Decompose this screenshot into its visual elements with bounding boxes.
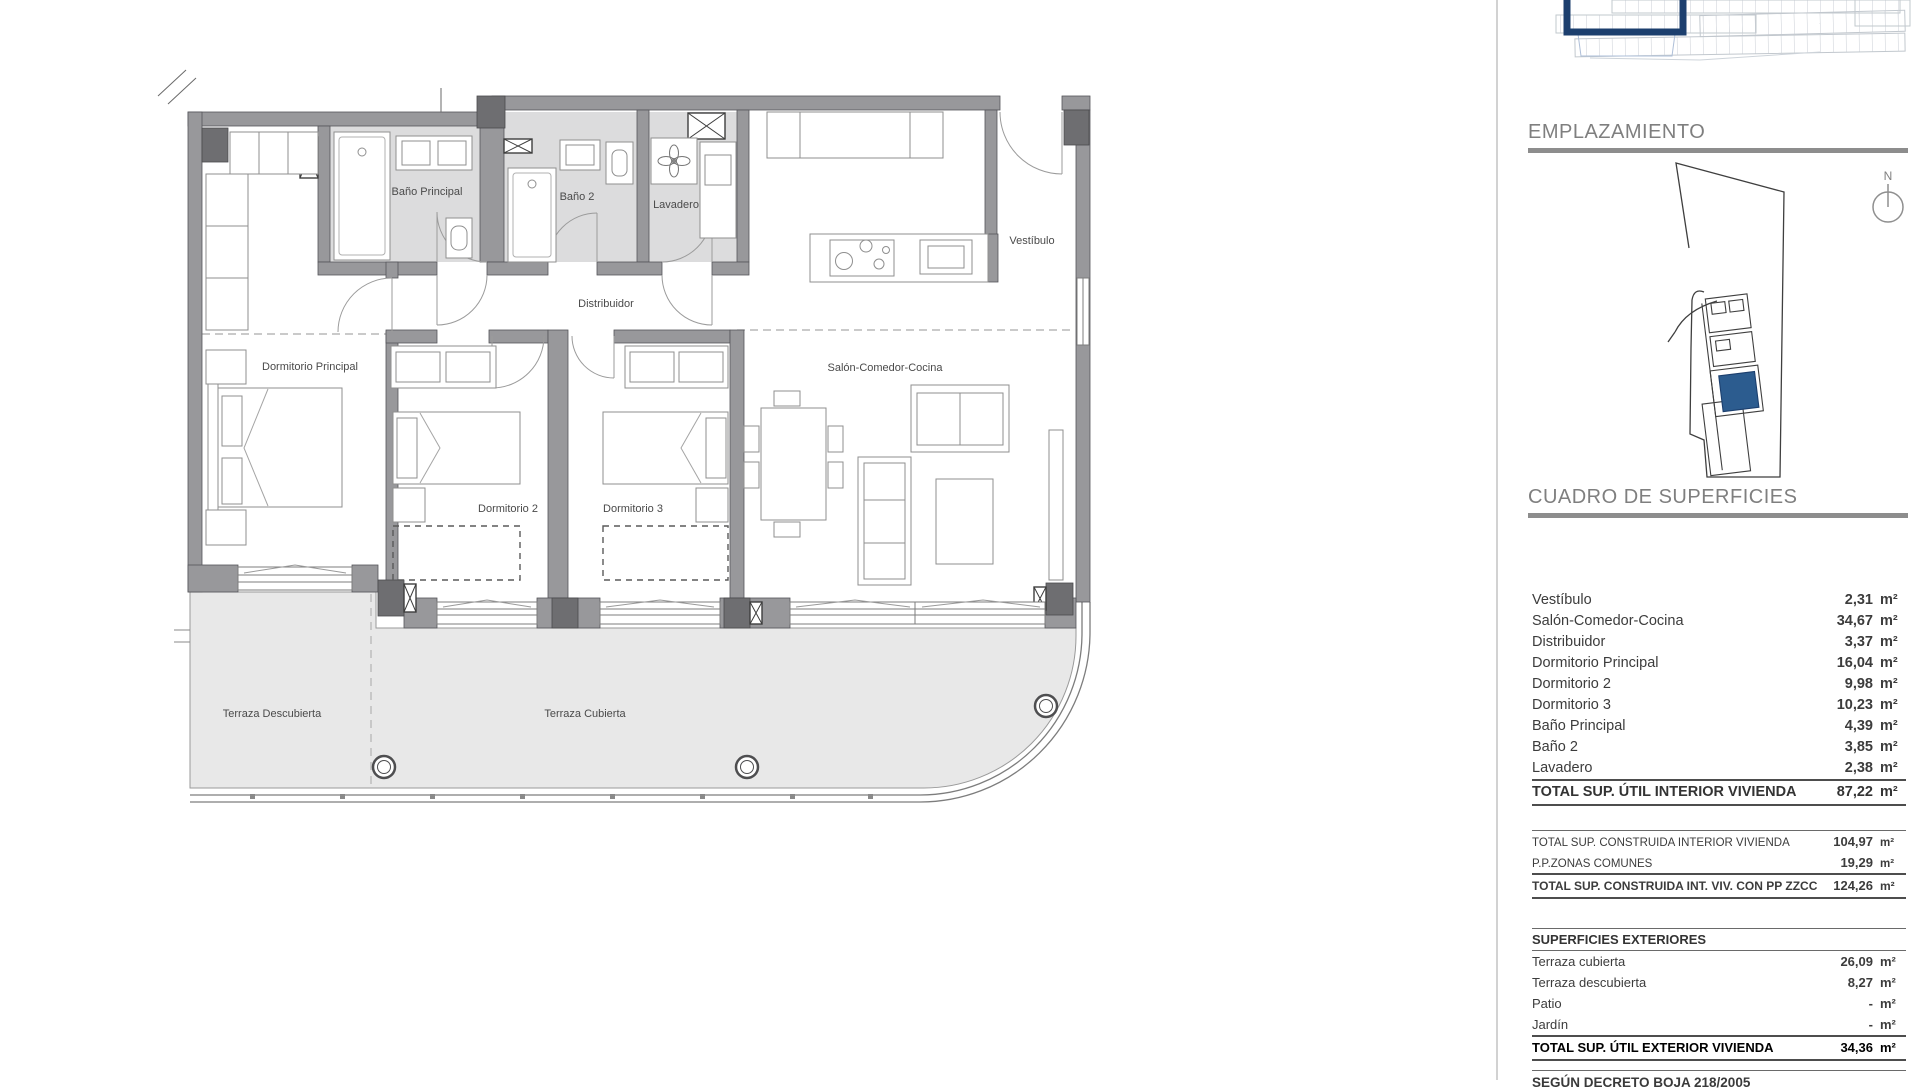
kitchen-units xyxy=(767,112,988,282)
label-terraza-descubierta: Terraza Descubierta xyxy=(223,708,322,720)
drawing-canvas: Baño Principal Baño 2 Lavadero Vestíbulo… xyxy=(0,0,1920,1080)
heading-underline xyxy=(1528,148,1908,153)
surface-row: Baño 23,85m² xyxy=(1532,737,1906,758)
living-furniture xyxy=(744,385,1063,585)
label-bano-principal: Baño Principal xyxy=(392,186,463,198)
construida-table: TOTAL SUP. CONSTRUIDA INTERIOR VIVIENDA1… xyxy=(1532,830,1906,899)
emplazamiento-heading: EMPLAZAMIENTO xyxy=(1528,121,1908,153)
cuadro-heading: CUADRO DE SUPERFICIES xyxy=(1528,486,1908,518)
surface-row: Terraza cubierta26,09m² xyxy=(1532,951,1906,972)
cuadro-title: CUADRO DE SUPERFICIES xyxy=(1528,486,1797,508)
bedroom-3-furniture xyxy=(603,346,728,580)
interior-total-row: TOTAL SUP. ÚTIL INTERIOR VIVIENDA87,22m² xyxy=(1532,779,1906,806)
surface-row: Jardín-m² xyxy=(1532,1014,1906,1035)
surface-row: TOTAL SUP. CONSTRUIDA INTERIOR VIVIENDA1… xyxy=(1532,831,1906,852)
construida-total-row: TOTAL SUP. CONSTRUIDA INT. VIV. CON PP Z… xyxy=(1532,873,1906,899)
label-bano-2: Baño 2 xyxy=(560,191,595,203)
label-dormitorio-principal: Dormitorio Principal xyxy=(262,361,358,373)
floor-plan: Baño Principal Baño 2 Lavadero Vestíbulo… xyxy=(158,70,1090,802)
bedroom-2-furniture xyxy=(391,346,520,580)
label-salon: Salón-Comedor-Cocina xyxy=(828,362,944,374)
surface-row: Baño Principal4,39m² xyxy=(1532,716,1906,737)
surface-row: Patio-m² xyxy=(1532,993,1906,1014)
exterior-total-row: TOTAL SUP. ÚTIL EXTERIOR VIVIENDA34,36m² xyxy=(1532,1035,1906,1061)
surface-row: Distribuidor3,37m² xyxy=(1532,632,1906,653)
label-lavadero: Lavadero xyxy=(653,199,699,211)
decree-note: SEGÚN DECRETO BOJA 218/2005 xyxy=(1532,1070,1906,1090)
label-dormitorio-3: Dormitorio 3 xyxy=(603,503,663,515)
highlighted-unit-fill xyxy=(1719,372,1759,412)
label-terraza-cubierta: Terraza Cubierta xyxy=(544,708,626,720)
emplazamiento-title: EMPLAZAMIENTO xyxy=(1528,121,1705,143)
exteriores-header: SUPERFICIES EXTERIORES xyxy=(1532,928,1906,951)
label-distribuidor: Distribuidor xyxy=(578,298,634,310)
surface-row: Dormitorio 29,98m² xyxy=(1532,674,1906,695)
surface-row: Dormitorio 310,23m² xyxy=(1532,695,1906,716)
interior-surfaces-table: Vestíbulo2,31m² Salón-Comedor-Cocina34,6… xyxy=(1532,590,1906,806)
building-elevation xyxy=(1556,0,1910,60)
plan-sheet: Baño Principal Baño 2 Lavadero Vestíbulo… xyxy=(0,0,1920,1080)
label-dormitorio-2: Dormitorio 2 xyxy=(478,503,538,515)
exteriores-table: SUPERFICIES EXTERIORES Terraza cubierta2… xyxy=(1532,928,1906,1090)
surface-row: Lavadero2,38m² xyxy=(1532,758,1906,779)
heading-underline xyxy=(1528,513,1908,518)
label-vestibulo: Vestíbulo xyxy=(1009,235,1054,247)
corner-ticks xyxy=(158,70,441,112)
surface-row: P.P.ZONAS COMUNES19,29m² xyxy=(1532,852,1906,873)
surface-row: Vestíbulo2,31m² xyxy=(1532,590,1906,611)
site-plan xyxy=(1668,163,1784,477)
surface-row: Salón-Comedor-Cocina34,67m² xyxy=(1532,611,1906,632)
north-arrow-icon: N xyxy=(1873,169,1903,222)
svg-text:N: N xyxy=(1884,169,1893,183)
surface-row: Dormitorio Principal16,04m² xyxy=(1532,653,1906,674)
surface-row: Terraza descubierta8,27m² xyxy=(1532,972,1906,993)
